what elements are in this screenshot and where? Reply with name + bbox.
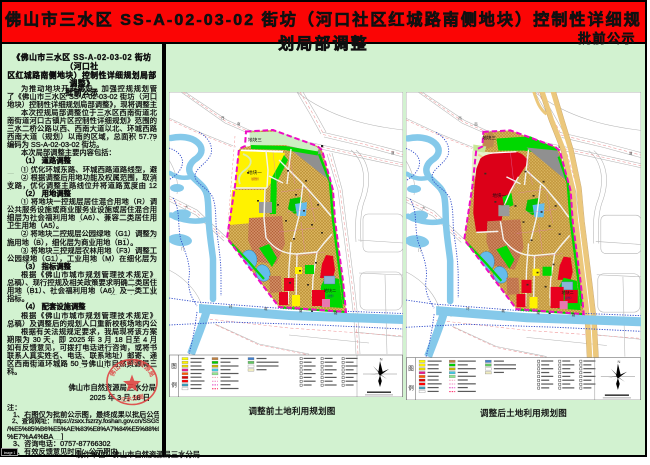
svg-text:图: 图	[408, 365, 414, 373]
svg-text:（調整）: （調整）	[563, 296, 573, 300]
svg-text:地块三: 地块三	[248, 137, 262, 144]
svg-text:例: 例	[408, 384, 414, 392]
svg-text:地块一: 地块一	[492, 192, 506, 199]
svg-text:图: 图	[171, 362, 177, 370]
svg-text:地块一: 地块一	[248, 169, 262, 176]
svg-text:（調整）: （調整）	[325, 294, 335, 298]
svg-text:路: 路	[572, 312, 576, 317]
svg-text:例: 例	[171, 381, 177, 389]
svg-text:地块三: 地块三	[482, 134, 496, 141]
svg-text:门: 门	[418, 248, 422, 253]
svg-text:地块二: 地块二	[562, 289, 574, 295]
svg-text:（調）: （調）	[498, 201, 507, 206]
svg-text:南: 南	[537, 310, 541, 315]
svg-text:N: N	[617, 359, 620, 364]
svg-text:N: N	[380, 357, 383, 362]
svg-text:环: 环	[466, 307, 470, 311]
svg-text:道: 道	[629, 151, 633, 156]
svg-text:西: 西	[458, 116, 462, 120]
svg-text:地块二: 地块二	[324, 287, 336, 293]
svg-text:城: 城	[501, 308, 505, 313]
svg-text:（調整）: （調整）	[249, 176, 261, 181]
svg-text:南: 南	[474, 121, 478, 126]
svg-text:大: 大	[422, 205, 426, 210]
